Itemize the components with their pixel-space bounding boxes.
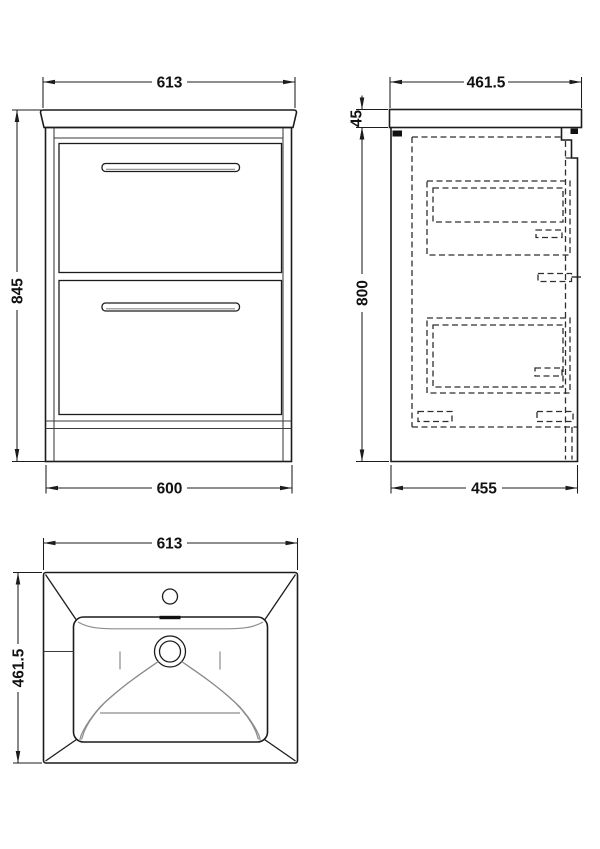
upper-drawer-side-hidden xyxy=(433,188,563,222)
side-dim-depth-top-label: 461.5 xyxy=(467,75,506,92)
side-hidden-details xyxy=(412,137,577,460)
side-dim-worktop-height: 45 xyxy=(349,96,389,142)
front-dim-width-bottom: 600 xyxy=(46,465,292,498)
plan-dim-depth-left-label: 461.5 xyxy=(11,648,28,687)
technical-drawing: 613 845 600 xyxy=(0,0,600,849)
handle-bar xyxy=(102,164,240,172)
front-cabinet-body xyxy=(46,128,292,462)
bowl-contour xyxy=(185,664,261,742)
plan-bowl-curves xyxy=(80,652,261,742)
side-dim-depth-top: 461.5 xyxy=(390,75,582,109)
plan-dim-width-top-label: 613 xyxy=(157,536,183,553)
corner-edge xyxy=(265,575,296,620)
front-dim-width-top-label: 613 xyxy=(157,75,183,92)
drawing-svg: 613 845 600 xyxy=(0,0,600,849)
side-dim-cabinet-height: 800 xyxy=(355,128,390,462)
plan-view: 613 461.5 xyxy=(11,536,298,764)
side-dim-depth-bottom: 455 xyxy=(391,465,578,498)
front-drawer-top-handle xyxy=(102,164,240,172)
front-dim-height-left: 845 xyxy=(10,110,46,462)
tap-hole xyxy=(163,589,178,604)
side-worktop xyxy=(390,110,582,128)
plan-dim-width-top: 613 xyxy=(44,536,298,571)
front-worktop xyxy=(41,110,297,128)
handle-bar xyxy=(102,303,240,311)
front-dim-width-bottom-label: 600 xyxy=(157,481,183,498)
side-dim-depth-bottom-label: 455 xyxy=(471,481,497,498)
bottom-rail-back-hidden xyxy=(537,412,573,422)
side-dim-worktop-height-label: 45 xyxy=(349,110,366,128)
rim-inner-line xyxy=(78,622,263,629)
lower-drawer-runner-hidden xyxy=(535,368,562,376)
corner-edge xyxy=(265,740,296,762)
mid-rail-hidden xyxy=(538,274,572,282)
side-dim-cabinet-height-label: 800 xyxy=(355,280,372,306)
upper-drawer-runner-hidden xyxy=(536,230,562,238)
front-dim-width-top: 613 xyxy=(43,75,295,109)
front-drawer-bottom-handle xyxy=(102,303,240,311)
bottom-rail-front-hidden xyxy=(418,412,452,422)
upper-drawer-box-hidden xyxy=(427,181,570,255)
side-back-rail-block xyxy=(571,129,579,135)
side-view: 461.5 45 800 455 xyxy=(349,75,582,498)
front-view: 613 845 600 xyxy=(10,75,297,498)
plan-dim-depth-left: 461.5 xyxy=(11,573,43,764)
front-dim-height-left-label: 845 xyxy=(10,278,27,304)
front-drawer-bottom xyxy=(59,281,282,415)
bowl-contour xyxy=(82,662,159,740)
overflow-slot xyxy=(160,616,181,619)
lower-drawer-box-hidden xyxy=(427,318,570,393)
corner-edge xyxy=(46,740,77,762)
lower-drawer-side-hidden xyxy=(433,325,563,387)
corner-edge xyxy=(46,575,77,620)
side-fixing-block xyxy=(393,131,403,137)
bowl-contour xyxy=(182,662,259,740)
bowl-contour xyxy=(80,664,156,742)
waste-drain-inner xyxy=(160,641,181,662)
